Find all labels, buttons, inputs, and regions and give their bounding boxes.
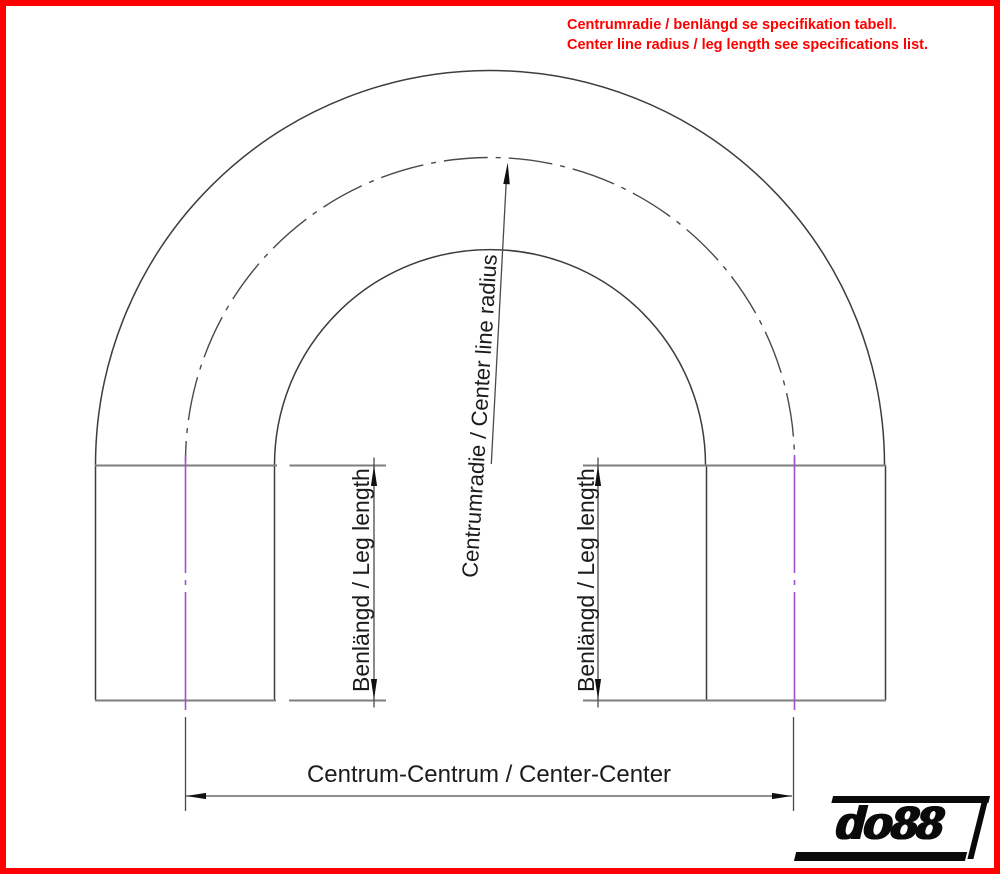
arrow-radius (503, 163, 510, 185)
logo-bottom-bar (794, 852, 967, 861)
pipe-bend-drawing (0, 0, 1000, 874)
arrow-right-cc (772, 793, 792, 799)
leg-length-label-left: Benlängd / Leg length (348, 477, 375, 692)
spec-note-line1: Centrumradie / benlängd se specifikation… (567, 15, 928, 35)
center-center-label: Centrum-Centrum / Center-Center (289, 761, 689, 789)
drawing-canvas: Centrumradie / benlängd se specifikation… (0, 0, 1000, 874)
logo-text: do88 (802, 798, 976, 847)
arrow-left-cc (186, 793, 206, 799)
do88-logo: do88 (797, 795, 985, 862)
spec-note-line2: Center line radius / leg length see spec… (567, 35, 928, 55)
leg-length-label-right: Benlängd / Leg length (573, 477, 600, 692)
do88-logo-frame: do88 (789, 795, 994, 862)
spec-note: Centrumradie / benlängd se specifikation… (567, 15, 928, 55)
